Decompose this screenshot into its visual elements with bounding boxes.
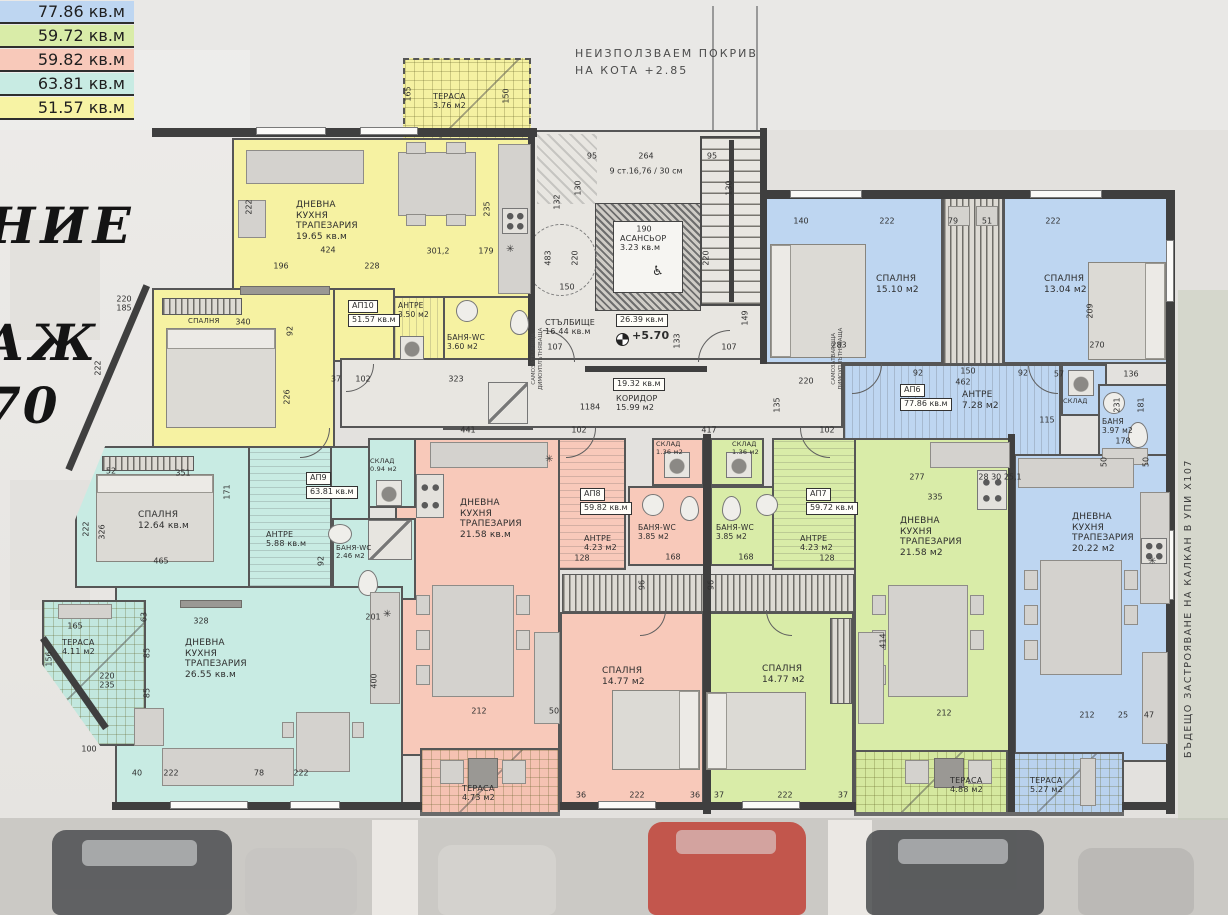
sofa (246, 150, 364, 184)
dimension-label: 441 (460, 426, 475, 435)
car-silhouette (648, 822, 806, 915)
legend-item: 77.86 кв.м (0, 1, 134, 24)
dimension-label: 220 (116, 295, 131, 304)
chair (406, 214, 426, 226)
sink-icon (756, 494, 778, 516)
dimension-label: 51 (982, 217, 992, 226)
dimension-label: 483 (544, 250, 553, 265)
sofa (1142, 652, 1168, 744)
dimension-label: 196 (273, 262, 288, 271)
room-label-ap7-living: ДНЕВНА КУХНЯ ТРАПЕЗАРИЯ 21.58 м2 (900, 516, 962, 558)
dimension-label: 57 (1054, 370, 1064, 379)
wall (112, 802, 422, 810)
dimension-label: 92 (1018, 369, 1028, 378)
room-ap6-terrace (1008, 752, 1124, 816)
bed (612, 690, 700, 770)
pillow (167, 329, 275, 349)
apartment-tag-ap9: АП9 63.81 кв.м (306, 472, 358, 499)
room-label-ap6-antre: АНТРЕ 7.28 м2 (962, 390, 999, 411)
dimension-label: 28 30 25,1 (978, 473, 1021, 482)
dimension-label: 135 (773, 397, 782, 412)
chair (516, 595, 530, 615)
dimension-label: 78 (254, 769, 264, 778)
corridor-label: КОРИДОР 15.99 м2 (616, 394, 658, 413)
chair (282, 722, 294, 738)
bed (770, 244, 866, 358)
dimension-label: 132 (553, 194, 562, 209)
background-column (372, 820, 418, 915)
room-label-ap10-bedroom: СПАЛНЯ (188, 317, 220, 325)
dimension-label: 220 (702, 250, 711, 265)
dimension-label: 95 (707, 152, 717, 161)
dimension-label: 190 (636, 225, 651, 234)
dimension-label: 228 (364, 262, 379, 271)
room-label-ap9-antre: АНТРЕ 5.88 кв.м (266, 530, 306, 549)
apartment-tag-ap7: АП7 59.72 кв.м (806, 488, 858, 515)
dimension-label: 209 (1086, 303, 1095, 318)
dimension-label: 85 (143, 688, 152, 698)
room-label-ap6-sklad: СКЛАД (1063, 398, 1088, 406)
area-legend: 77.86 кв.м59.72 кв.м59.82 кв.м63.81 кв.м… (0, 1, 134, 121)
staircase-label: СТЪЛБИЩЕ 16.44 кв.м (545, 318, 595, 337)
dimension-label: 165 (67, 622, 82, 631)
dimension-label: 340 (235, 318, 250, 327)
dimension-label: 400 (370, 673, 379, 688)
wall (1122, 802, 1174, 810)
window (170, 801, 248, 809)
dimension-label: 222 (1045, 217, 1060, 226)
room-label-ap8-living: ДНЕВНА КУХНЯ ТРАПЕЗАРИЯ 21.58 кв.м (460, 498, 522, 540)
wardrobe (830, 618, 852, 704)
chair (1024, 605, 1038, 625)
room-label-ap9-sklad: СКЛАД 0.94 м2 (370, 458, 397, 473)
dimension-label: 222 (94, 360, 103, 375)
car-window (898, 839, 1008, 864)
dining-table (1040, 560, 1122, 675)
wardrobe (162, 298, 242, 315)
room-label-ap9-terrace: ТЕРАСА 4.11 м2 (62, 638, 95, 657)
stair-total-box: 26.39 кв.м (616, 314, 668, 327)
dimension-label: 25 (1118, 711, 1128, 720)
legend-item: 59.72 кв.м (0, 25, 134, 48)
room-label-ap6-bedroom2: СПАЛНЯ 13.04 м2 (1044, 274, 1087, 295)
dimension-label: 63 (140, 612, 149, 622)
chair (446, 214, 466, 226)
room-label-ap7-sklad: СКЛАД 1.36 м2 (732, 441, 759, 456)
dimension-label: 50 (549, 707, 559, 716)
room-label-ap8-terrace: ТЕРАСА 4.73 м2 (462, 784, 495, 803)
chair (905, 760, 929, 784)
dimension-label: 130 (725, 180, 734, 195)
dimension-label: 222 (629, 791, 644, 800)
room-label-ap10-terrace: ТЕРАСА 3.76 м2 (433, 92, 466, 111)
door-note-left: САМОЗАТВАРЯЩА ДИМОУПЛЪТНЯВАЩА (531, 313, 545, 405)
dimension-label: 222 (82, 521, 91, 536)
dimension-label: 115 (1039, 416, 1054, 425)
dimension-label: 222 (879, 217, 894, 226)
dimension-label: 133 (673, 333, 682, 348)
room-label-ap10-antre: АНТРЕ 3.50 м2 (398, 302, 429, 320)
chair (1124, 570, 1138, 590)
apartment-tag-ap6: АП6 77.86 кв.м (900, 384, 952, 411)
dining-table (432, 585, 514, 697)
dimension-label: 37 (838, 791, 848, 800)
dimension-label: 168 (738, 553, 753, 562)
car-silhouette (245, 848, 357, 915)
chair (970, 595, 984, 615)
chair (502, 760, 526, 784)
car-window (676, 830, 776, 854)
dimension-label: 50 (1142, 457, 1151, 467)
dimension-label: 107 (721, 343, 736, 352)
chair (970, 630, 984, 650)
dimension-label: 149 (741, 310, 750, 325)
dimension-label: 301,2 (427, 247, 450, 256)
dimension-label: 102 (355, 375, 370, 384)
chair (1024, 640, 1038, 660)
sink-icon (328, 524, 352, 544)
chair (416, 665, 430, 685)
dimension-label: 326 (98, 524, 107, 539)
dining-table (296, 712, 350, 772)
dimension-label: 414 (879, 633, 888, 648)
room-label-ap7-bath: БАНЯ-WC 3.85 м2 (716, 524, 754, 542)
floorplan-canvas: 77.86 кв.м59.72 кв.м59.82 кв.м63.81 кв.м… (0, 0, 1228, 915)
pillow (771, 245, 791, 357)
dimension-label: 96 (707, 580, 716, 590)
toilet-icon (722, 496, 741, 521)
pillow (679, 691, 699, 769)
room-ap8-closet-strip (562, 574, 704, 612)
level-mark-icon (616, 333, 629, 346)
room-ap7-closet-strip (708, 574, 854, 612)
dimension-label: 102 (571, 426, 586, 435)
cooktop-icon: ✳ (545, 454, 553, 465)
wall (1008, 434, 1015, 814)
dimension-label: 335 (927, 493, 942, 502)
dimension-label: 140 (793, 217, 808, 226)
handwritten-title-fragment: АЖ (0, 313, 100, 372)
legend-item: 59.82 кв.м (0, 49, 134, 72)
dimension-label: 212 (471, 707, 486, 716)
room-label-ap8-antre: АНТРЕ 4.23 м2 (584, 534, 617, 553)
cooktop-icon: ✳ (506, 244, 514, 255)
chair (352, 722, 364, 738)
dimension-label: 328 (193, 617, 208, 626)
dimension-label: 179 (478, 247, 493, 256)
window (742, 801, 800, 809)
dimension-label: 283 (831, 341, 846, 350)
car-silhouette (438, 845, 556, 915)
armchair (134, 708, 164, 746)
dimension-label: 235 (483, 201, 492, 216)
kitchen-counter (1018, 458, 1134, 488)
room-label-ap9-bedroom: СПАЛНЯ 12.64 кв.м (138, 510, 189, 531)
dimension-label: 424 (320, 246, 335, 255)
dimension-label: 37 (331, 375, 341, 384)
dimension-label: 1184 (580, 403, 600, 412)
dimension-label: 185 (116, 304, 131, 313)
dimension-label: 95 (587, 152, 597, 161)
dimension-label: 92 (286, 326, 295, 336)
dimension-label: 462 (955, 378, 970, 387)
elevator-label: АСАНСЬОР 3.23 кв.м (620, 234, 666, 253)
dimension-label: 201 (365, 613, 380, 622)
toilet-icon (680, 496, 699, 521)
dimension-label: 47 (1144, 711, 1154, 720)
car-silhouette (52, 830, 232, 915)
wall (760, 128, 767, 364)
wheelchair-icon: ♿ (652, 264, 664, 279)
dimension-label: 37 (714, 791, 724, 800)
dimension-label: 9 ст.16,76 / 30 см (609, 167, 682, 176)
room-label-ap9-living: ДНЕВНА КУХНЯ ТРАПЕЗАРИЯ 26.55 кв.м (185, 638, 247, 680)
room-ap9-antre (248, 446, 332, 588)
handwritten-title-fragment: НИЕ (0, 196, 136, 255)
room-label-ap6-bath: БАНЯ 3.97 м2 (1102, 418, 1133, 436)
room-label-ap7-terrace: ТЕРАСА 4.88 м2 (950, 776, 983, 795)
window (598, 801, 656, 809)
apartment-tag-ap8: АП8 59.82 кв.м (580, 488, 632, 515)
room-label-ap8-bedroom: СПАЛНЯ 14.77 м2 (602, 666, 645, 687)
window (256, 127, 326, 135)
bed (706, 692, 806, 770)
sink-icon (642, 494, 664, 516)
dimension-label: 96 (638, 580, 647, 590)
window (1030, 190, 1102, 198)
cooktop-icon: ✳ (383, 609, 391, 620)
apartment-tag-ap10: АП10 51.57 кв.м (348, 300, 400, 327)
dimension-label: 220 (571, 250, 580, 265)
dimension-label: 128 (819, 554, 834, 563)
terrace-rail (854, 812, 1008, 816)
window (790, 190, 862, 198)
kitchen-counter (930, 442, 1010, 468)
washing-machine-icon (1068, 370, 1094, 396)
dimension-label: 92 (913, 369, 923, 378)
dimension-label: 85 (143, 648, 152, 658)
handwritten-title-fragment: 70 (0, 376, 60, 435)
dimension-label: 150 (559, 283, 574, 292)
tv-unit (240, 286, 330, 295)
wall (585, 366, 707, 372)
shower (488, 382, 528, 424)
dimension-label: 212 (936, 709, 951, 718)
car-silhouette (1078, 848, 1194, 915)
dimension-label: 150 (960, 367, 975, 376)
dimension-label: 178 (1115, 437, 1130, 446)
cooktop (502, 208, 528, 234)
window (1166, 240, 1174, 302)
dining-table (888, 585, 968, 697)
dimension-label: 168 (665, 553, 680, 562)
dimension-label: 465 (153, 557, 168, 566)
room-label-ap6-terrace: ТЕРАСА 5.27 м2 (1030, 776, 1063, 795)
dimension-label: 277 (909, 473, 924, 482)
dimension-label: 92 (317, 556, 326, 566)
dimension-label: 231 (1113, 397, 1122, 412)
dimension-label: 264 (638, 152, 653, 161)
room-label-ap10-living: ДНЕВНА КУХНЯ ТРАПЕЗАРИЯ 19.65 кв.м (296, 200, 358, 242)
room-label-ap9-bath: БАНЯ-WC 2.46 м2 (336, 544, 371, 561)
tv-unit (180, 600, 242, 608)
dimension-label: 417 (701, 426, 716, 435)
corridor-area-box: 19.32 кв.м (613, 378, 665, 391)
dimension-label: 100 (81, 745, 96, 754)
washing-machine-icon (376, 480, 402, 506)
bed (166, 328, 276, 428)
dimension-label: 220 (798, 377, 813, 386)
chair (872, 595, 886, 615)
washing-machine-icon (400, 336, 424, 360)
legend-item: 51.57 кв.м (0, 97, 134, 120)
dimension-label: 235 (99, 681, 114, 690)
dimension-label: 79 (948, 217, 958, 226)
level-mark-label: +5.70 (632, 330, 669, 343)
terrace-rail (420, 812, 560, 816)
shower (368, 520, 412, 560)
stair-rail (729, 140, 734, 302)
chair (416, 630, 430, 650)
cooktop (416, 474, 444, 518)
room-label-ap8-bath: БАНЯ-WC 3.85 м2 (638, 524, 676, 542)
core-roof-hatch (537, 134, 597, 204)
dimension-label: 171 (223, 484, 232, 499)
room-label-ap7-antre: АНТРЕ 4.23 м2 (800, 534, 833, 553)
dimension-label: 150 (502, 88, 511, 103)
chair (446, 142, 466, 154)
dimension-label: 36 (690, 791, 700, 800)
car-silhouette (866, 830, 1044, 915)
dimension-label: 222 (777, 791, 792, 800)
room-label-ap10-bath: БАНЯ-WC 3.60 м2 (447, 334, 485, 352)
room-label-ap8-sklad: СКЛАД 1.36 м2 (656, 441, 683, 456)
chair (516, 630, 530, 650)
toilet-icon (510, 310, 529, 335)
dimension-label: 181 (1137, 397, 1146, 412)
cooktop-icon: ✳ (1148, 556, 1156, 567)
window (360, 127, 418, 135)
car-window (82, 840, 197, 866)
chair (416, 595, 430, 615)
chair (1024, 570, 1038, 590)
chair (1124, 605, 1138, 625)
wall (152, 128, 537, 137)
chair (406, 142, 426, 154)
dimension-label: 36 (576, 791, 586, 800)
dimension-label: 212 (1079, 711, 1094, 720)
dimension-label: 222 (293, 769, 308, 778)
dimension-label: 107 (547, 343, 562, 352)
sink-icon (456, 300, 478, 322)
dimension-label: 102 (819, 426, 834, 435)
sunbed (58, 604, 112, 619)
room-label-ap6-living: ДНЕВНА КУХНЯ ТРАПЕЗАРИЯ 20.22 м2 (1072, 512, 1134, 554)
window (290, 801, 340, 809)
sofa (162, 748, 294, 786)
terrace-rail (1008, 812, 1124, 816)
dimension-label: 136 (1123, 370, 1138, 379)
dimension-label: 52 (106, 467, 116, 476)
dimension-label: 222 (163, 769, 178, 778)
dimension-label: 220 (99, 672, 114, 681)
dimension-label: 323 (448, 375, 463, 384)
roof-note: НЕИЗПОЛЗВАЕМ ПОКРИВ НА КОТА +2.85 (575, 46, 758, 79)
pillow (97, 475, 213, 493)
room-label-ap6-bedroom1: СПАЛНЯ 15.10 м2 (876, 274, 919, 295)
chair (440, 760, 464, 784)
room-label-ap7-bedroom: СПАЛНЯ 14.77 м2 (762, 664, 805, 685)
dimension-label: 156 (45, 651, 54, 666)
dimension-label: 270 (1089, 341, 1104, 350)
dimension-label: 351 (175, 469, 190, 478)
pillow (1145, 263, 1165, 359)
dimension-label: 222 (245, 199, 254, 214)
bench (1080, 758, 1096, 806)
door-note-right: САМОЗАТВАРЯЩА ДИМОУПЛЪТНЯВАЩА (831, 313, 845, 405)
dimension-label: 226 (283, 389, 292, 404)
dimension-label: 128 (574, 554, 589, 563)
dimension-label: 165 (404, 86, 413, 101)
legend-item: 63.81 кв.м (0, 73, 134, 96)
pillow (707, 693, 727, 769)
dimension-label: 40 (132, 769, 142, 778)
dining-table (398, 152, 476, 216)
kitchen-counter (430, 442, 548, 468)
future-building-note: БЪДЕЩО ЗАСТРОЯВАНЕ НА КАЛКАН В УПИ X107 (1183, 400, 1194, 758)
dimension-label: 50 (1100, 457, 1109, 467)
dimension-label: 130 (574, 180, 583, 195)
